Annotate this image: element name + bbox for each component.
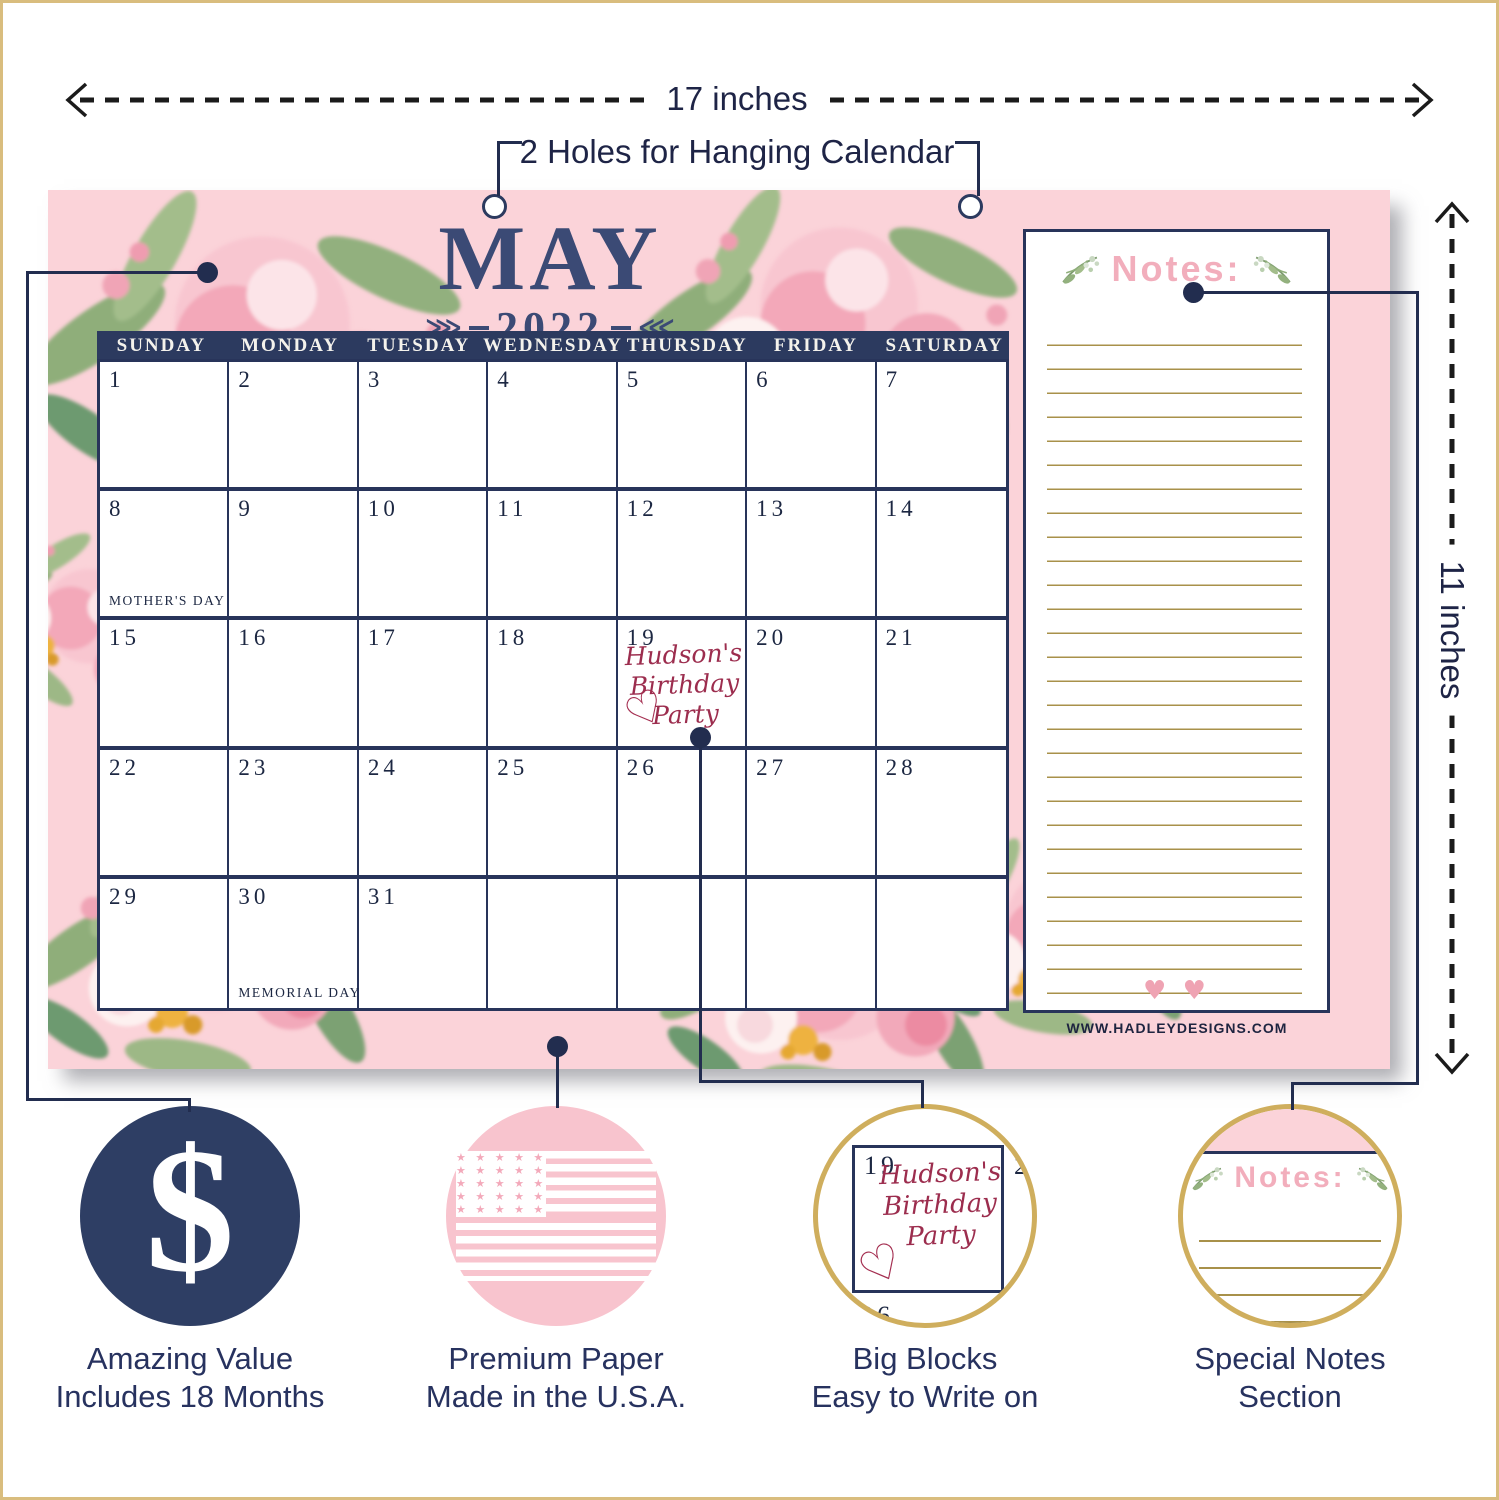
calendar-cell: 11 — [488, 491, 617, 620]
width-dimension-label: 17 inches — [650, 80, 823, 118]
leader-line — [26, 271, 210, 274]
leader-dot — [197, 262, 218, 283]
holiday-label: MEMORIAL DAY — [238, 985, 360, 1001]
date-number: 24 — [359, 750, 486, 781]
caption-line: Easy to Write on — [770, 1378, 1080, 1416]
calendar-cell: 22 — [100, 750, 229, 879]
zoomed-handwritten-event: Hudson's Birthday Party — [878, 1157, 1001, 1254]
zoomed-notes-title-row: Notes: — [1183, 1161, 1397, 1195]
date-number: 11 — [488, 491, 615, 522]
date-number: 7 — [877, 362, 1006, 393]
day-header-row: SUNDAYMONDAYTUESDAYWEDNESDAYTHURSDAYFRID… — [97, 331, 1009, 359]
day-header: THURSDAY — [623, 331, 752, 359]
date-number: 10 — [359, 491, 486, 522]
date-number: 21 — [877, 620, 1006, 651]
leader-line — [1193, 291, 1419, 294]
holes-bracket-left — [497, 141, 522, 196]
calendar-cell: 3 — [359, 362, 488, 491]
usa-flag-icon: ★ ★ ★ ★ ★ ★ ★ ★ ★ ★ ★ ★ ★ ★ ★ ★ ★ ★ ★ ★ … — [456, 1151, 656, 1281]
date-number: 28 — [877, 750, 1006, 781]
zoom-date: 26 — [860, 1301, 894, 1328]
day-header: WEDNESDAY — [483, 331, 623, 359]
greenery-sprig-icon — [1250, 249, 1296, 289]
leader-line — [26, 271, 29, 1101]
feature-circle-value: $ — [80, 1106, 300, 1326]
flag-stars: ★ ★ ★ ★ ★ ★ — [456, 1203, 546, 1216]
date-number: 25 — [488, 750, 615, 781]
calendar-cell: 6 — [747, 362, 876, 491]
notes-panel: Notes: ♥ ♥ — [1023, 229, 1330, 1013]
feature-circle-paper: ★ ★ ★ ★ ★ ★ ★ ★ ★ ★ ★ ★ ★ ★ ★ ★ ★ ★ ★ ★ … — [446, 1106, 666, 1326]
zoom-date: 20 — [1014, 1151, 1037, 1181]
date-number: 23 — [229, 750, 356, 781]
calendar-cell: 31 — [359, 879, 488, 1008]
flag-stars: ★ ★ ★ ★ ★ ★ — [456, 1177, 546, 1190]
date-number: 18 — [488, 620, 615, 651]
leader-line — [1291, 1082, 1294, 1110]
notes-title: Notes: — [1234, 1161, 1345, 1195]
calendar-grid: 12345678MOTHER'S DAY91011121314151617181… — [97, 359, 1009, 1011]
caption-big-blocks: Big Blocks Easy to Write on — [770, 1340, 1080, 1416]
date-number: 26 — [618, 750, 745, 781]
feature-circle-big-blocks: 19 20 26 Hudson's Birthday Party ♡ — [813, 1104, 1037, 1328]
feature-circle-notes: Notes: — [1178, 1104, 1402, 1328]
event-line: Hudson's — [878, 1157, 999, 1192]
caption-paper: Premium Paper Made in the U.S.A. — [390, 1340, 722, 1416]
caption-line: Amazing Value — [30, 1340, 350, 1378]
calendar-cell: 2 — [229, 362, 358, 491]
holes-bracket-right — [955, 141, 980, 196]
date-number: 2 — [229, 362, 356, 393]
event-line: Birthday — [879, 1188, 1000, 1223]
product-infographic: 17 inches 11 inches 2 Holes for Hanging … — [0, 0, 1499, 1500]
day-header: SATURDAY — [880, 331, 1009, 359]
day-header: SUNDAY — [97, 331, 226, 359]
flag-canton: ★ ★ ★ ★ ★ ★ ★ ★ ★ ★ ★ ★ ★ ★ ★ ★ ★ ★ ★ ★ … — [456, 1151, 546, 1217]
date-number: 4 — [488, 362, 615, 393]
date-number: 29 — [100, 879, 227, 910]
calendar-cell: 18 — [488, 620, 617, 749]
calendar-cell — [488, 879, 617, 1008]
height-dimension-label: 11 inches — [1431, 545, 1473, 716]
calendar-cell: 13 — [747, 491, 876, 620]
date-number: 30 — [229, 879, 356, 910]
calendar-cell: 26 — [618, 750, 747, 879]
date-number: 8 — [100, 491, 227, 522]
flag-stripes — [546, 1151, 656, 1217]
calendar-cell: 16 — [229, 620, 358, 749]
calendar-cell — [877, 879, 1006, 1008]
caption-value: Amazing Value Includes 18 Months — [30, 1340, 350, 1416]
website-label: WWW.HADLEYDESIGNS.COM — [1047, 1020, 1307, 1036]
date-number: 16 — [229, 620, 356, 651]
leader-line — [699, 737, 702, 1083]
calendar-cell — [618, 879, 747, 1008]
event-line: Hudson's — [620, 638, 746, 672]
caption-line: Premium Paper — [390, 1340, 722, 1378]
day-header: MONDAY — [226, 331, 355, 359]
date-number: 14 — [877, 491, 1006, 522]
date-number: 5 — [618, 362, 745, 393]
date-number: 31 — [359, 879, 486, 910]
date-number: 17 — [359, 620, 486, 651]
leader-dot — [1183, 282, 1204, 303]
arrow-shaft-right — [611, 326, 631, 330]
hearts-icon: ♥ ♥ — [1026, 976, 1327, 1006]
calendar-cell: 30MEMORIAL DAY — [229, 879, 358, 1008]
date-number: 20 — [747, 620, 874, 651]
calendar-cell: 20 — [747, 620, 876, 749]
greenery-sprig-icon — [1188, 1162, 1226, 1194]
calendar-cell: 24 — [359, 750, 488, 879]
leader-line — [699, 1080, 924, 1083]
notes-title-row: Notes: — [1026, 248, 1327, 290]
leader-line — [1292, 1082, 1419, 1085]
flag-stars: ★ ★ ★ ★ ★ ★ — [456, 1151, 546, 1164]
calendar-cell: 10 — [359, 491, 488, 620]
caption-line: Includes 18 Months — [30, 1378, 350, 1416]
date-number: 9 — [229, 491, 356, 522]
date-number: 1 — [100, 362, 227, 393]
leader-line — [1416, 291, 1419, 1085]
calendar-cell: 25 — [488, 750, 617, 879]
day-header: TUESDAY — [354, 331, 483, 359]
caption-line: Section — [1140, 1378, 1440, 1416]
leader-line — [26, 1098, 191, 1101]
leader-dot — [690, 727, 711, 748]
date-number: 6 — [747, 362, 874, 393]
date-number: 12 — [618, 491, 745, 522]
date-number: 22 — [100, 750, 227, 781]
hanging-hole-left — [482, 194, 507, 219]
leader-line — [921, 1080, 924, 1108]
zoomed-ruled-lines — [1199, 1215, 1381, 1323]
flag-stars: ★ ★ ★ ★ ★ ★ — [456, 1164, 546, 1177]
zoomed-notes-border — [1183, 1151, 1397, 1154]
date-number: 3 — [359, 362, 486, 393]
calendar-cell: 29 — [100, 879, 229, 1008]
calendar-cell: 1 — [100, 362, 229, 491]
dollar-icon: $ — [146, 1121, 235, 1311]
calendar-cell: 5 — [618, 362, 747, 491]
calendar-cell: 9 — [229, 491, 358, 620]
event-line: Party — [881, 1219, 1002, 1254]
calendar-cell: 7 — [877, 362, 1006, 491]
holes-callout-label: 2 Holes for Hanging Calendar — [520, 133, 955, 171]
holiday-label: MOTHER'S DAY — [109, 593, 225, 609]
notes-title: Notes: — [1111, 248, 1241, 290]
calendar-cell: 17 — [359, 620, 488, 749]
leader-dot — [547, 1036, 568, 1057]
calendar-cell: 27 — [747, 750, 876, 879]
greenery-sprig-icon — [1354, 1162, 1392, 1194]
calendar-cell: 8MOTHER'S DAY — [100, 491, 229, 620]
leader-line — [188, 1098, 191, 1112]
calendar-cell: 15 — [100, 620, 229, 749]
month-title: MAY — [375, 210, 725, 306]
calendar-cell: 12 — [618, 491, 747, 620]
date-number: 15 — [100, 620, 227, 651]
calendar-cell — [747, 879, 876, 1008]
calendar-cell: 28 — [877, 750, 1006, 879]
calendar-cell: 14 — [877, 491, 1006, 620]
arrow-shaft-left — [469, 326, 489, 330]
flag-stripes — [456, 1217, 656, 1281]
calendar-cell: 21 — [877, 620, 1006, 749]
greenery-sprig-icon — [1057, 249, 1103, 289]
flag-stars: ★ ★ ★ ★ ★ ★ — [456, 1190, 546, 1203]
zoomed-notes-strip — [1183, 1109, 1397, 1151]
caption-line: Big Blocks — [770, 1340, 1080, 1378]
caption-line: Special Notes — [1140, 1340, 1440, 1378]
date-number: 13 — [747, 491, 874, 522]
day-header: FRIDAY — [752, 331, 881, 359]
caption-notes-section: Special Notes Section — [1140, 1340, 1440, 1416]
caption-line: Made in the U.S.A. — [390, 1378, 722, 1416]
hanging-hole-right — [958, 194, 983, 219]
calendar-cell: 4 — [488, 362, 617, 491]
calendar-cell: 23 — [229, 750, 358, 879]
date-number: 27 — [747, 750, 874, 781]
notes-ruled-lines — [1047, 322, 1302, 994]
